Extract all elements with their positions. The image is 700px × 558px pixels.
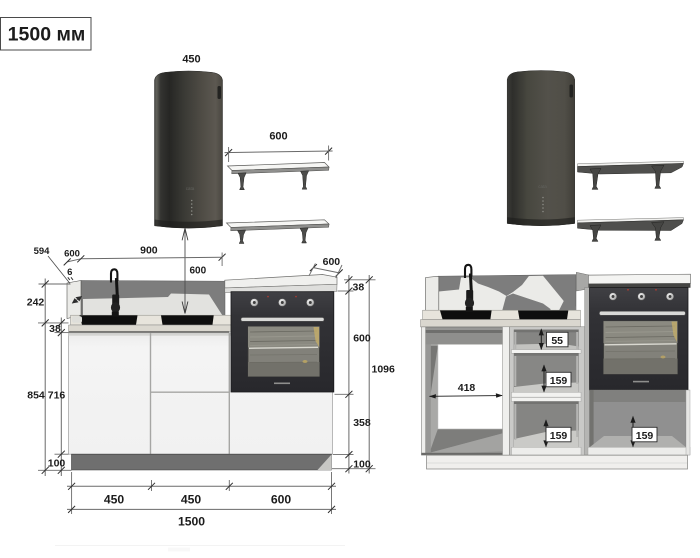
svg-text:242: 242 [27,297,45,309]
svg-text:600: 600 [64,249,80,260]
svg-text:159: 159 [636,430,654,442]
svg-text:38: 38 [353,281,365,293]
svg-text:1096: 1096 [372,363,396,375]
svg-text:100: 100 [48,457,66,469]
svg-text:600: 600 [271,493,292,507]
svg-text:594: 594 [34,246,51,257]
svg-text:cata: cata [186,186,195,191]
svg-text:358: 358 [353,417,371,429]
svg-text:450: 450 [181,493,202,507]
svg-text:418: 418 [458,382,476,394]
svg-text:cata: cata [538,184,547,189]
svg-text:159: 159 [550,375,568,387]
svg-text:600: 600 [323,256,341,268]
svg-text:100: 100 [353,459,371,471]
svg-text:38: 38 [49,323,61,335]
svg-text:55: 55 [551,335,563,347]
svg-text:6: 6 [67,267,72,278]
svg-text:600: 600 [269,131,287,143]
svg-text:1500 мм: 1500 мм [8,23,86,45]
svg-text:900: 900 [140,245,158,257]
svg-text:716: 716 [48,390,66,402]
svg-text:1500: 1500 [178,515,205,529]
svg-text:450: 450 [104,493,125,507]
svg-text:159: 159 [550,430,568,442]
svg-text:600: 600 [190,266,207,277]
svg-text:450: 450 [182,53,200,65]
svg-text:854: 854 [27,390,45,402]
svg-text:600: 600 [353,333,371,345]
